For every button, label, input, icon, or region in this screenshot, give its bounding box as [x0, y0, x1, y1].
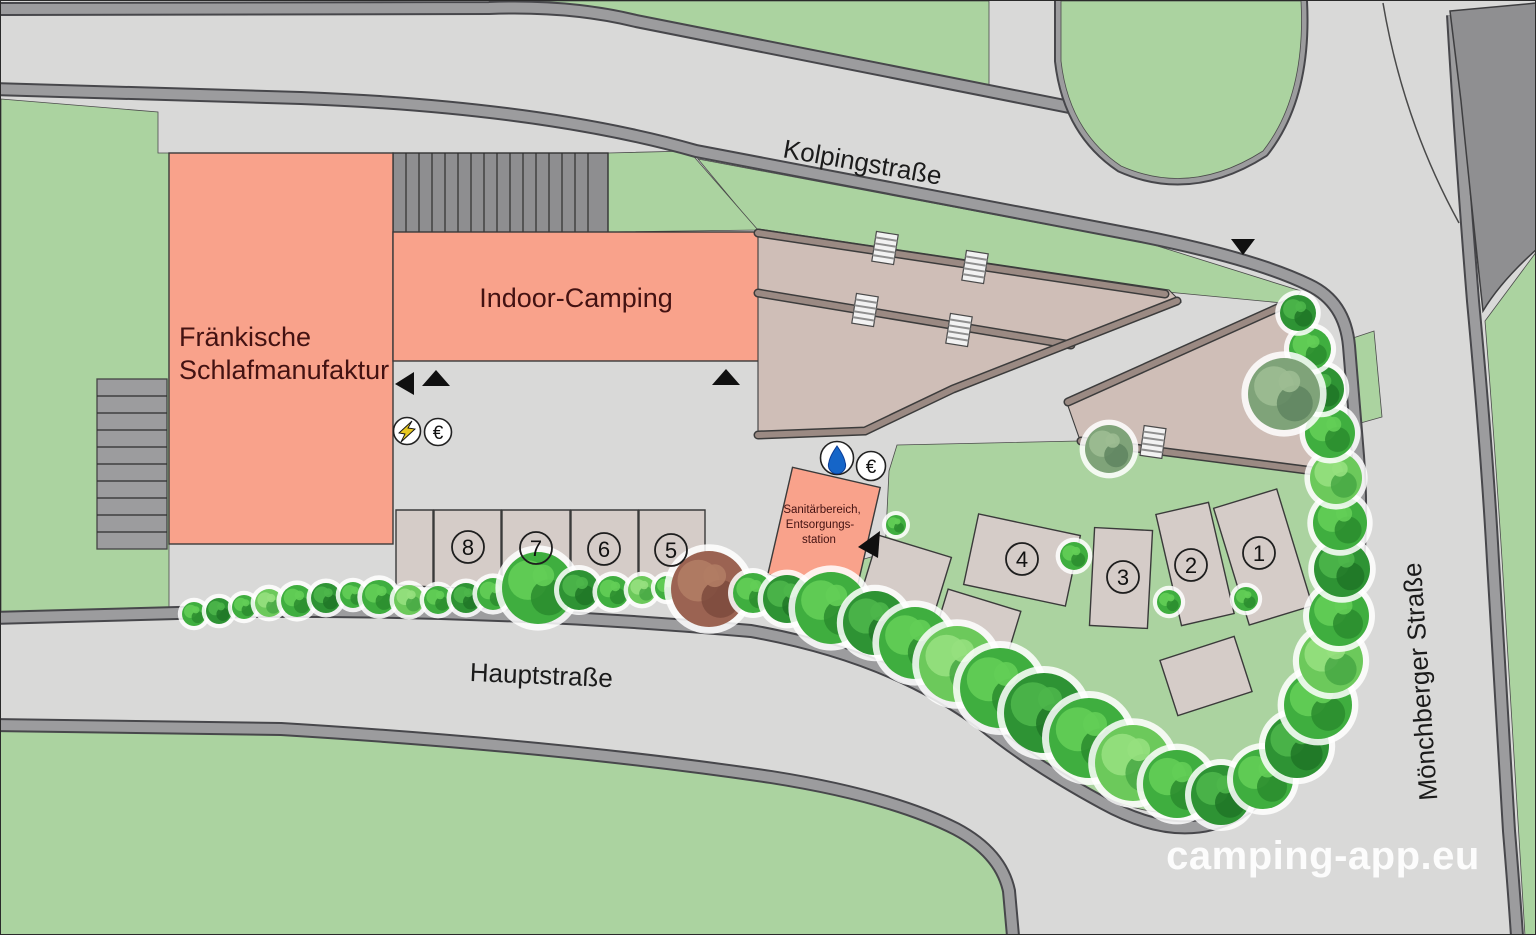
svg-text:€: €: [433, 423, 444, 444]
svg-text:€: €: [866, 457, 877, 478]
building-sanitaer-label-1: Sanitärbereich,: [783, 504, 860, 516]
svg-text:3: 3: [1117, 565, 1129, 590]
tree-icon: [1241, 351, 1326, 436]
tree-icon: [1056, 538, 1093, 575]
svg-text:7: 7: [530, 536, 542, 561]
building-schlafmanufaktur-label-2: Schlafmanufaktur: [179, 355, 389, 385]
building-indoor-camping-label: Indoor-Camping: [479, 283, 673, 313]
pitch-unnumbered: [396, 510, 433, 587]
svg-text:8: 8: [462, 535, 474, 560]
svg-text:6: 6: [598, 537, 610, 562]
tree-icon: [882, 511, 910, 539]
tree-icon: [1275, 290, 1321, 336]
site-map-canvas: Fränkische Schlafmanufaktur Indoor-Campi…: [1, 1, 1536, 935]
site-map: Fränkische Schlafmanufaktur Indoor-Campi…: [0, 0, 1536, 935]
svg-text:4: 4: [1016, 547, 1028, 572]
svg-text:2: 2: [1185, 553, 1197, 578]
street-label-hauptstrasse: Hauptstraße: [469, 657, 613, 693]
parking-strip: [393, 153, 608, 233]
svg-text:1: 1: [1253, 541, 1265, 566]
building-sanitaer-label-3: station: [802, 534, 836, 546]
svg-text:5: 5: [665, 538, 677, 563]
tree-icon: [1230, 583, 1262, 615]
building-schlafmanufaktur-label-1: Fränkische: [179, 322, 311, 352]
watermark: camping-app.eu: [1166, 834, 1480, 878]
tree-icon: [1080, 420, 1139, 479]
tree-icon: [1153, 586, 1185, 618]
building-sanitaer-label-2: Entsorgungs-: [786, 519, 855, 531]
loading-dock: [97, 379, 167, 549]
